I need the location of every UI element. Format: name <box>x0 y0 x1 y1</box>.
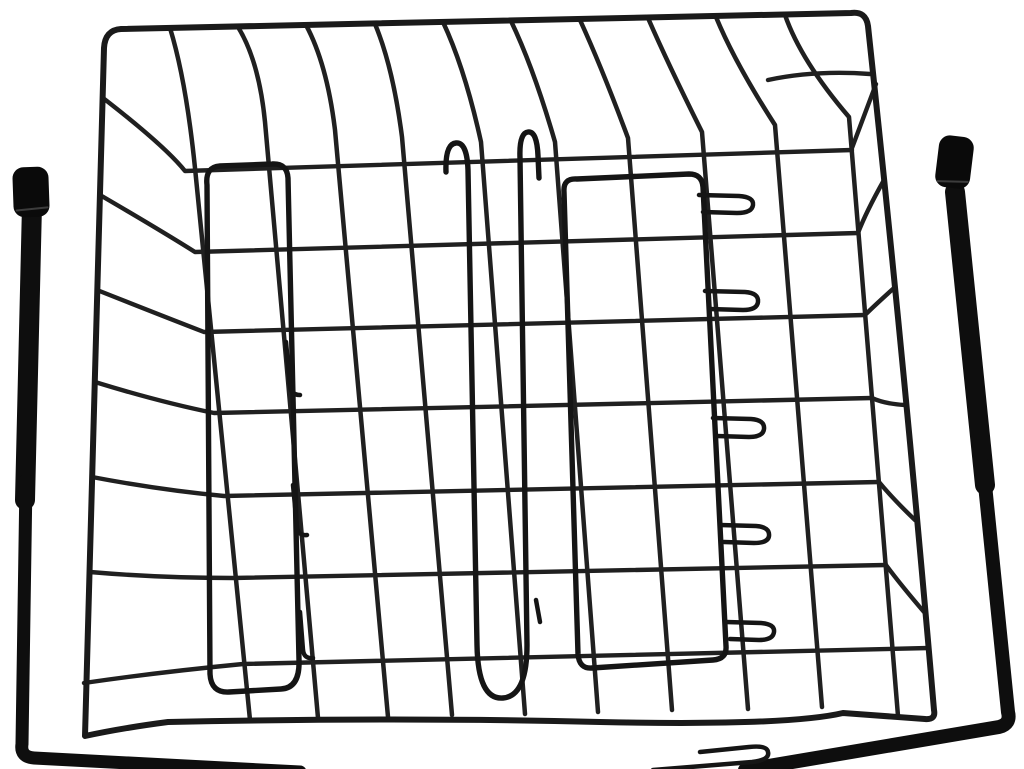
wire-rack-illustration <box>0 0 1024 769</box>
product-photo <box>0 0 1024 769</box>
right-rail-end-cap <box>934 134 975 190</box>
left-rail-end-cap <box>12 166 50 217</box>
left-rail-bar-upper <box>25 205 32 500</box>
